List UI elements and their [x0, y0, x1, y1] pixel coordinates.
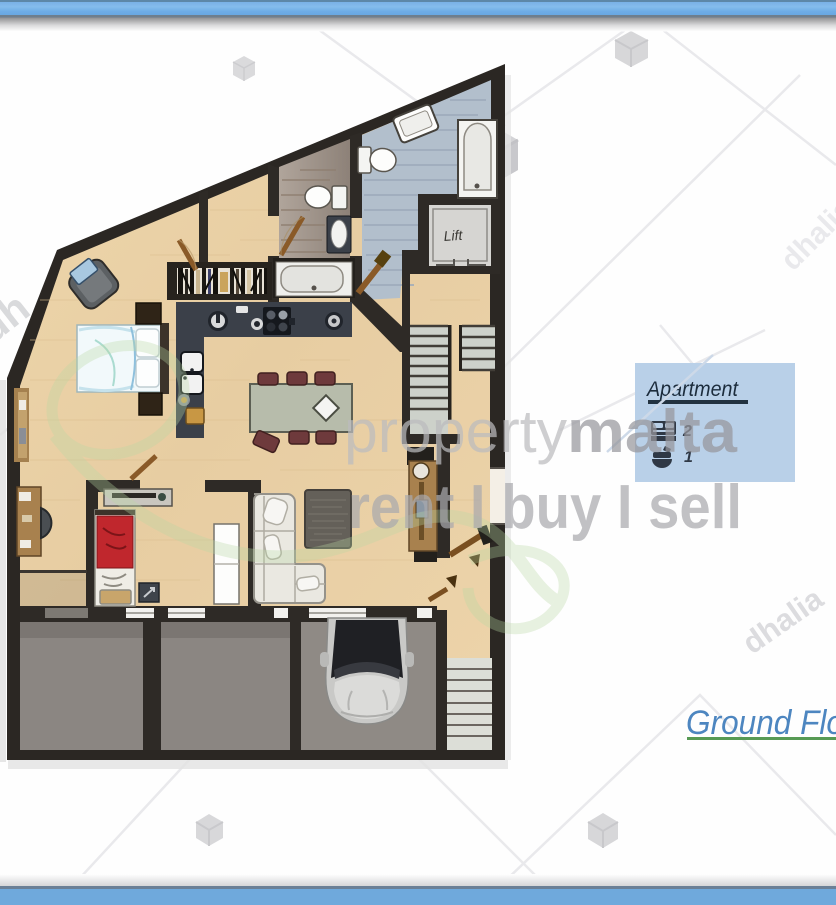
svg-text:malta: malta: [567, 398, 738, 465]
svg-text:property: property: [344, 398, 567, 465]
svg-text:Ground Flo: Ground Flo: [686, 704, 836, 742]
svg-text:Lift: Lift: [443, 227, 464, 244]
svg-text:rent I buy I sell: rent I buy I sell: [348, 473, 742, 542]
